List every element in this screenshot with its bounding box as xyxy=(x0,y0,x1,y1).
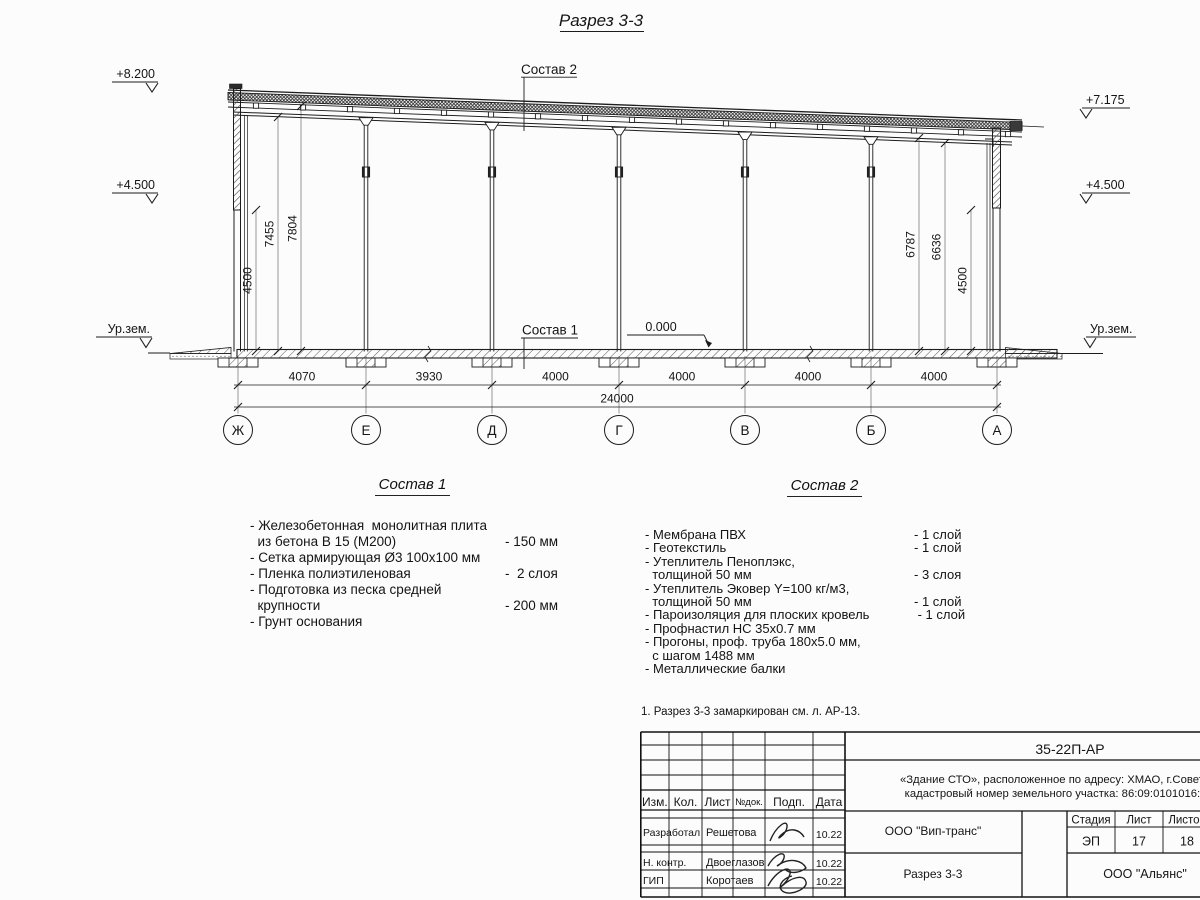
right-wall-bracket xyxy=(985,139,993,147)
row-role: ГИП xyxy=(643,875,664,887)
axis-label: Д xyxy=(487,423,496,438)
sostav-item: - Металлические балки xyxy=(645,662,869,675)
sostav-item-text: - Утеплитель Эковер Y=100 кг/м3, толщино… xyxy=(645,581,849,609)
row-name: Двоеглазов xyxy=(706,857,765,869)
column xyxy=(359,118,373,352)
height-dim-label: 6636 xyxy=(930,233,944,260)
row-role: Н. контр. xyxy=(643,857,686,869)
column xyxy=(864,137,878,352)
row-name: Коротаев xyxy=(706,875,754,887)
axis-label: Ж xyxy=(232,423,245,438)
elevation-label: +4.500 xyxy=(116,178,155,192)
sostav2-leader: Состав 2 xyxy=(521,62,577,131)
sostav-item: - Сетка армирующая Ø3 100х100 мм xyxy=(250,550,487,566)
sostav-item-text: - Железобетонная монолитная плита из бет… xyxy=(250,518,487,549)
column xyxy=(738,132,752,351)
elevation-label: Ур.зем. xyxy=(108,322,150,336)
span-dim-label: 4000 xyxy=(542,370,569,384)
col-kol: Кол. xyxy=(674,795,698,809)
project-line2: кадастровый номер земельного участка: 86… xyxy=(905,788,1200,800)
purlin xyxy=(253,103,258,108)
height-dim-label: 4500 xyxy=(241,267,255,294)
sostav-item-value: - 1 слой xyxy=(914,528,962,541)
span-dim-label: 4070 xyxy=(289,370,316,384)
sheet-number: 17 xyxy=(1132,835,1146,849)
elevation-label: +8.200 xyxy=(116,67,155,81)
right-wall xyxy=(985,128,1001,352)
span-dim-label: 3930 xyxy=(416,370,443,384)
sostav-item-text: - Грунт основания xyxy=(250,614,362,629)
stage-value: ЭП xyxy=(1082,835,1100,849)
elevation-right-top: +7.175 xyxy=(1080,93,1130,118)
stage-col: Лист xyxy=(1127,815,1153,827)
doc-code: 35-22П-АР xyxy=(1035,741,1104,757)
purlin xyxy=(676,119,681,124)
level-mark-icon xyxy=(1080,109,1092,118)
axis-label: А xyxy=(992,423,1001,438)
sostav2-heading: Состав 2 xyxy=(752,477,897,494)
column xyxy=(485,122,499,351)
col-list: Лист xyxy=(704,795,731,809)
sostav-item-value: - 3 слоя xyxy=(914,568,961,581)
total-dim-label: 24000 xyxy=(600,392,634,406)
elevation-left-ground: Ур.зем. xyxy=(96,322,152,348)
level-mark-icon xyxy=(1084,338,1096,348)
section-drawing: Разрез 3-3 xyxy=(0,0,1200,470)
purlin xyxy=(911,128,916,133)
row-date: 10.22 xyxy=(816,876,842,888)
purlin xyxy=(347,107,352,112)
purlin xyxy=(488,112,493,117)
sostav-item-text: - Утеплитель Пеноплэкс, толщиной 50 мм xyxy=(645,554,795,582)
drawing-title: Разрез 3-3 xyxy=(904,867,963,881)
drawing-sheet: Разрез 3-3 xyxy=(0,0,1200,900)
column-head-bracket xyxy=(359,118,373,126)
row-role: Разработал xyxy=(643,827,700,839)
sostav-item: - Прогоны, проф. труба 180х5.0 мм, с шаг… xyxy=(645,635,869,662)
roof-end-cap xyxy=(1010,122,1022,131)
row-date: 10.22 xyxy=(816,858,842,870)
left-apron xyxy=(170,348,231,354)
org-center: ООО "Вип-транс" xyxy=(885,824,982,838)
level-mark-icon xyxy=(140,338,152,348)
purlin xyxy=(441,110,446,115)
sostav2-title: Состав 2 xyxy=(787,477,863,497)
sheet-title: Разрез 3-3 xyxy=(559,11,644,32)
sostav-item-text: - Сетка армирующая Ø3 100х100 мм xyxy=(250,550,480,565)
span-dim-label: 4000 xyxy=(921,370,948,384)
sostav-item-value: - 1 слой xyxy=(914,608,965,621)
height-dim-label: 7804 xyxy=(286,215,300,242)
axis-label: В xyxy=(740,423,749,438)
stage-col: Стадия xyxy=(1071,815,1110,827)
column-head-bracket xyxy=(738,132,752,140)
sostav2-list: - Мембрана ПВХ- 1 слой- Геотекстиль- 1 с… xyxy=(645,528,869,675)
project-line1: «Здание СТО», расположенное по адресу: Х… xyxy=(900,774,1200,786)
axis-label: Е xyxy=(361,423,370,438)
sheet-count: 18 xyxy=(1180,835,1194,849)
elevation-right-ground: Ур.зем. xyxy=(1084,322,1136,348)
purlin xyxy=(582,115,587,120)
purlin xyxy=(535,114,540,119)
sostav1-heading: Состав 1 xyxy=(340,476,485,493)
sostav1-title: Состав 1 xyxy=(375,476,451,496)
sostav-item: - Пароизоляция для плоских кровель - 1 с… xyxy=(645,608,869,621)
sostav-item: - Подготовка из песка средней крупности-… xyxy=(250,582,487,614)
purlin xyxy=(817,124,822,129)
org-right: ООО "Альянс" xyxy=(1103,867,1187,881)
left-wall xyxy=(230,84,248,352)
purlin xyxy=(1005,131,1010,136)
purlin xyxy=(394,108,399,113)
col-ndok: №док. xyxy=(735,797,763,808)
purlin xyxy=(770,123,775,128)
purlin xyxy=(629,117,634,122)
column-head-bracket xyxy=(612,127,626,134)
height-dim-label: 6787 xyxy=(904,231,918,258)
elevation-right-mid: +4.500 xyxy=(1080,178,1130,203)
row-date: 10.22 xyxy=(816,829,842,841)
sostav-item-text: - Пленка полиэтиленовая xyxy=(250,566,411,581)
sostav-item: - Утеплитель Пеноплэкс, толщиной 50 мм- … xyxy=(645,555,869,582)
elevation-label: +7.175 xyxy=(1086,93,1125,107)
sostav-item: - Железобетонная монолитная плита из бет… xyxy=(250,518,487,550)
col-data: Дата xyxy=(816,795,843,809)
sostav-item-value: - 150 мм xyxy=(505,534,558,550)
sostav-item-text: - Прогоны, проф. труба 180х5.0 мм, с шаг… xyxy=(645,634,861,662)
column-head-bracket xyxy=(864,137,878,145)
sostav-item: - Геотекстиль- 1 слой xyxy=(645,541,869,554)
right-wall-panel xyxy=(993,128,1001,208)
page-title: Разрез 3-3 xyxy=(559,11,644,30)
columns xyxy=(359,118,878,352)
elevation-label: Ур.зем. xyxy=(1090,322,1132,336)
sostav-item: - Утеплитель Эковер Y=100 кг/м3, толщино… xyxy=(645,582,869,609)
sostav1-ref-label: Состав 1 xyxy=(522,323,578,338)
sostav1-leader: Состав 1 xyxy=(521,323,578,370)
axis-label: Г xyxy=(615,423,623,438)
row-name: Решетова xyxy=(706,827,757,839)
roof-assembly xyxy=(228,90,1044,145)
span-dim-label: 4000 xyxy=(795,370,822,384)
arrow-icon xyxy=(705,340,712,348)
signatures xyxy=(768,823,806,893)
axis-label: Б xyxy=(867,423,876,438)
total-dimension: 24000 xyxy=(234,392,1001,412)
purlin xyxy=(958,130,963,135)
sostav-item-value: - 1 слой xyxy=(914,595,962,608)
level-mark-icon xyxy=(146,194,158,203)
sostav-item-text: - Подготовка из песка средней крупности xyxy=(250,582,441,613)
sostav-item: - Пленка полиэтиленовая- 2 слоя xyxy=(250,566,487,582)
sostav-item-value: - 1 слой xyxy=(914,541,962,554)
zero-level-mark: 0.000 xyxy=(627,320,712,348)
left-wall-panel xyxy=(234,89,241,211)
sostav-item: - Профнастил НС 35х0.7 мм xyxy=(645,622,869,635)
height-dim-label: 7455 xyxy=(263,220,277,247)
foundation-pads xyxy=(218,358,1017,367)
sheet-note: 1. Разрез 3-3 замаркирован см. л. АР-13. xyxy=(641,706,860,718)
signature xyxy=(768,869,806,893)
sostav-item: - Грунт основания xyxy=(250,614,487,630)
sostav1-list: - Железобетонная монолитная плита из бет… xyxy=(250,518,487,630)
sostav-item-text: - Металлические балки xyxy=(645,661,785,676)
title-block: 35-22П-АР «Здание СТО», расположенное по… xyxy=(640,726,1200,900)
elevation-label: +4.500 xyxy=(1086,178,1125,192)
column xyxy=(612,127,626,351)
column-head-bracket xyxy=(485,122,499,130)
col-izm: Изм. xyxy=(642,795,668,809)
span-dim-label: 4000 xyxy=(669,370,696,384)
stage-col: Листов xyxy=(1168,815,1200,827)
height-dim-label: 4500 xyxy=(956,267,970,294)
purlin xyxy=(864,126,869,131)
left-parapet-cap xyxy=(230,84,243,89)
zero-level-label: 0.000 xyxy=(645,320,676,334)
sostav-item: - Мембрана ПВХ- 1 слой xyxy=(645,528,869,541)
sostav-item-value: - 2 слоя xyxy=(505,566,558,582)
col-podp: Подп. xyxy=(773,795,805,809)
sostav-item-value: - 200 мм xyxy=(505,598,558,614)
sostav2-ref-label: Состав 2 xyxy=(521,62,577,77)
floor-slab xyxy=(148,346,1103,367)
purlin xyxy=(723,121,728,126)
level-mark-icon xyxy=(1080,194,1092,203)
signature xyxy=(770,823,804,841)
elevation-left-top: +8.200 xyxy=(112,67,158,92)
level-mark-icon xyxy=(146,83,158,92)
elevation-left-mid: +4.500 xyxy=(112,178,158,203)
